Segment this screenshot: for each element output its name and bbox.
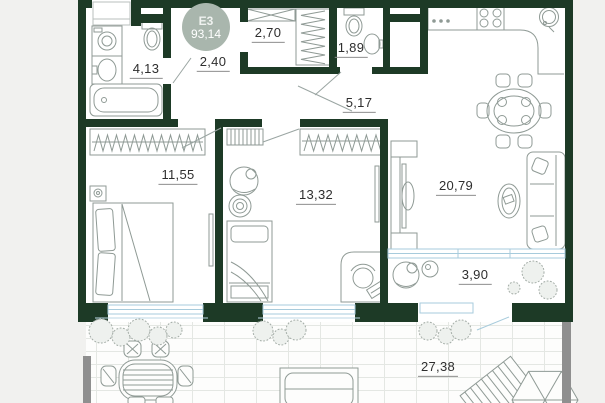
unit-number: E3	[199, 15, 214, 27]
unit-total-area: 93,14	[191, 28, 221, 40]
room-label-bedroom1: 11,55	[158, 168, 197, 185]
room-label-bathroom: 4,13	[130, 62, 163, 79]
room-label-balcony: 3,90	[459, 268, 492, 285]
room-label-hall: 2,40	[197, 55, 230, 72]
floor-plan: E3 93,14 4,13 2,40 2,70 1,89 5,17 11,55 …	[0, 0, 605, 403]
room-label-closet: 2,70	[252, 26, 285, 43]
room-label-terrace: 27,38	[418, 360, 458, 377]
room-label-wc: 1,89	[335, 41, 368, 58]
unit-badge: E3 93,14	[182, 3, 230, 51]
room-label-corridor: 5,17	[343, 96, 376, 113]
terrace-daybed-icon	[280, 368, 358, 403]
room-label-bedroom2: 13,32	[296, 188, 336, 205]
room-label-living: 20,79	[436, 179, 476, 196]
